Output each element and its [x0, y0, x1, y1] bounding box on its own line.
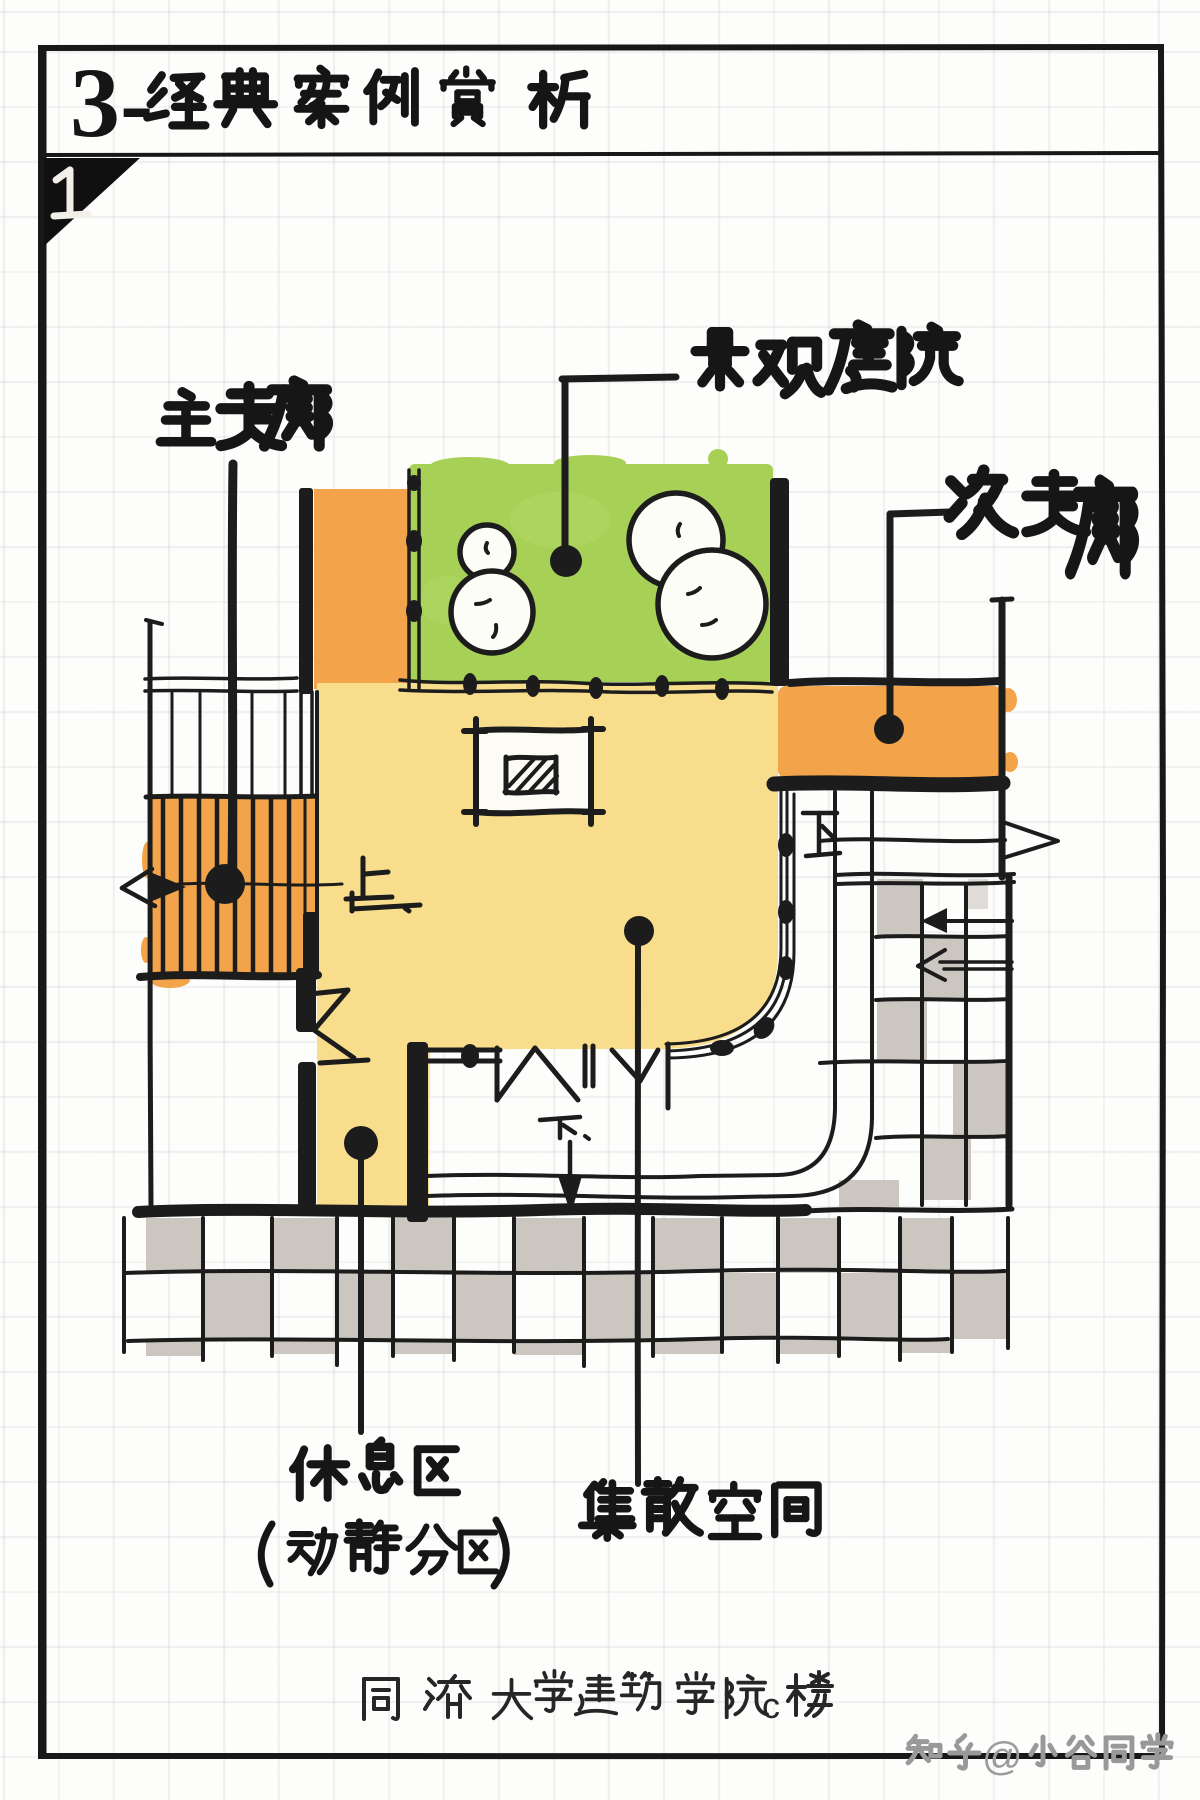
svg-text:c: c [762, 1685, 780, 1726]
svg-text:3-: 3- [70, 47, 153, 158]
svg-text:@: @ [982, 1735, 1023, 1779]
